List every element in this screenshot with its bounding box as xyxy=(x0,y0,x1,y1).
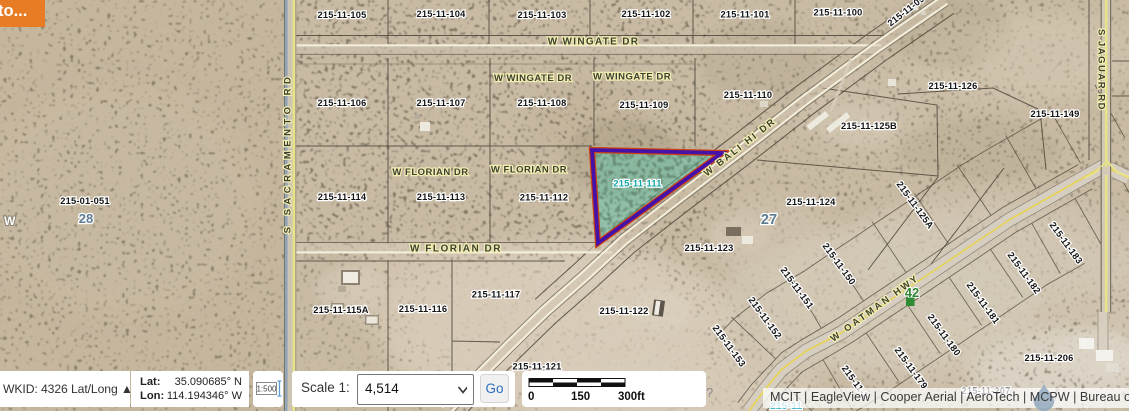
svg-text:215-11-101: 215-11-101 xyxy=(720,10,769,20)
svg-text:215-11-113: 215-11-113 xyxy=(417,192,466,202)
svg-text:215-11-125B: 215-11-125B xyxy=(841,121,897,131)
svg-text:215-11-115A: 215-11-115A xyxy=(313,305,369,315)
svg-text:215-11-103: 215-11-103 xyxy=(517,10,566,20)
svg-text:215-11-114: 215-11-114 xyxy=(318,192,367,202)
svg-text:S JAGUAR RD: S JAGUAR RD xyxy=(1096,29,1107,111)
svg-text:W WINGATE DR: W WINGATE DR xyxy=(593,72,671,83)
svg-text:215-11-100: 215-11-100 xyxy=(813,8,862,18)
svg-text:?: ? xyxy=(706,385,713,400)
svg-text:W WINGATE DR: W WINGATE DR xyxy=(494,73,572,84)
svg-text:215-11-106: 215-11-106 xyxy=(317,98,366,108)
svg-text:1:500: 1:500 xyxy=(256,385,277,394)
svg-text:W FLORIAN DR: W FLORIAN DR xyxy=(491,165,567,176)
svg-text:215-11-124: 215-11-124 xyxy=(786,197,836,207)
svg-text:215-11-116: 215-11-116 xyxy=(399,304,448,314)
svg-text:215-11-112: 215-11-112 xyxy=(520,193,569,203)
svg-text:150: 150 xyxy=(571,391,590,403)
svg-text:0: 0 xyxy=(528,391,534,403)
svg-text:215-11-102: 215-11-102 xyxy=(621,9,670,19)
svg-text:28: 28 xyxy=(79,211,93,226)
svg-text:W FLORIAN DR: W FLORIAN DR xyxy=(392,167,468,178)
svg-text:215-01-051: 215-01-051 xyxy=(60,196,110,206)
svg-text:300ft: 300ft xyxy=(618,391,645,403)
svg-text:215-11-111: 215-11-111 xyxy=(613,178,661,189)
svg-text:W: W xyxy=(4,214,16,228)
svg-text:W FLORIAN DR: W FLORIAN DR xyxy=(410,244,502,255)
svg-text:215-11-149: 215-11-149 xyxy=(1030,109,1079,119)
svg-text:215-11-107: 215-11-107 xyxy=(416,98,465,108)
svg-text:215-11-108: 215-11-108 xyxy=(517,98,566,108)
svg-text:215-11-121: 215-11-121 xyxy=(512,362,561,372)
svg-text:215-11-109: 215-11-109 xyxy=(619,100,668,110)
svg-text:W WINGATE DR: W WINGATE DR xyxy=(548,37,640,48)
svg-text:S SACRAMENTO RD: S SACRAMENTO RD xyxy=(283,73,294,234)
svg-text:215-11-122: 215-11-122 xyxy=(599,306,648,316)
svg-text:215-11-123: 215-11-123 xyxy=(684,243,733,253)
svg-text:215-11-126: 215-11-126 xyxy=(928,81,977,91)
svg-text:215-11-117: 215-11-117 xyxy=(472,290,521,300)
svg-text:215-11-104: 215-11-104 xyxy=(416,9,466,19)
svg-text:27: 27 xyxy=(761,212,777,228)
svg-text:215-11-105: 215-11-105 xyxy=(317,10,366,20)
svg-text:215-11-206: 215-11-206 xyxy=(1024,353,1073,363)
svg-text:215-11-110: 215-11-110 xyxy=(724,90,773,100)
